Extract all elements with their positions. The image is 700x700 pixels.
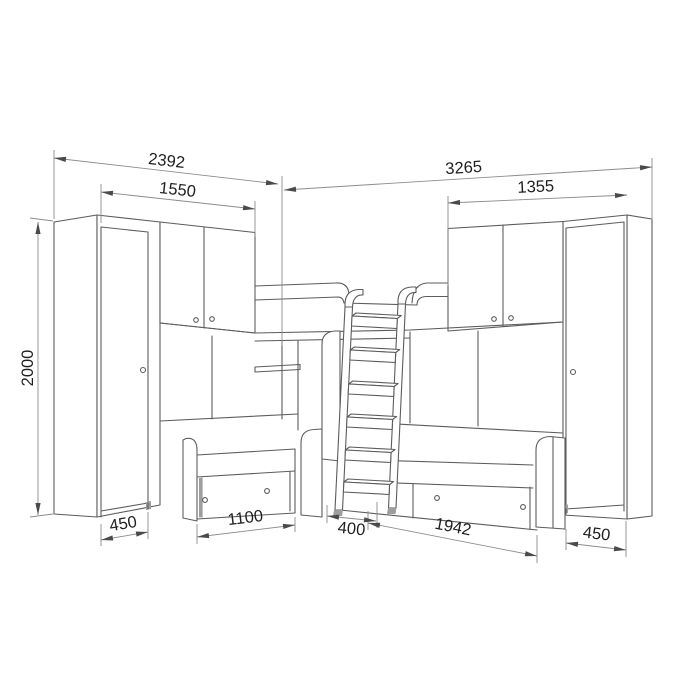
left-wardrobe-front xyxy=(97,215,160,517)
right-bed-drawer-knob-right xyxy=(521,505,526,510)
ladder xyxy=(333,287,416,516)
dimension-label-left-wardrobe-depth: 450 xyxy=(108,513,138,535)
furniture-drawing-canvas: 2392326515501355200045011004001942450 xyxy=(0,0,700,700)
left-bed-headboard xyxy=(183,438,197,521)
left-wardrobe xyxy=(54,215,160,517)
ladder-right-rail xyxy=(389,304,406,508)
right-bed-headboard xyxy=(322,331,340,461)
dimension-label-right-cabinet-width: 1355 xyxy=(517,177,554,197)
ladder-step-front xyxy=(347,417,393,430)
right-upper-cabinet-front xyxy=(448,222,563,332)
ladder-left-hook xyxy=(345,290,363,308)
ladder-step-front xyxy=(345,450,391,463)
dimension-label-left-bed-drawer-width: 1100 xyxy=(227,507,264,529)
ladder-step-front xyxy=(352,316,398,329)
left-bed-drawer-edge xyxy=(199,478,203,518)
right-bed-drawer-knob-left xyxy=(435,496,440,501)
ladder-right-foot xyxy=(387,508,397,514)
left-cupboard-bottom xyxy=(160,414,298,421)
left-bed-drawer-knob-right xyxy=(265,489,270,494)
right-wardrobe-side-panel xyxy=(627,215,652,519)
left-upper-cabinet-front xyxy=(160,222,255,333)
right-upper-cabinet xyxy=(448,222,563,332)
dimension-label-right-bed-drawer-width: 1942 xyxy=(433,515,472,540)
ladder-step-front xyxy=(350,350,396,363)
dimension-label-left-cabinet-width: 1550 xyxy=(158,179,196,201)
right-bed-footboard xyxy=(536,437,565,530)
right-wardrobe xyxy=(563,215,652,519)
right-wardrobe-front xyxy=(563,215,627,519)
left-bed-mattress-edge xyxy=(197,449,295,455)
dimension-label-right-wardrobe-depth: 450 xyxy=(582,523,611,544)
dimension-label-ladder-width: 400 xyxy=(337,519,366,540)
left-bed-drawer-knob-left xyxy=(203,498,208,503)
furniture-technical-drawing: 2392326515501355200045011004001942450 xyxy=(0,0,700,700)
ladder-step-front xyxy=(343,482,389,495)
dimension-label-overall-height: 2000 xyxy=(19,350,37,387)
left-bed-drawer-top xyxy=(197,471,295,477)
corner-shelf xyxy=(255,365,300,373)
left-wardrobe-side-panel xyxy=(54,215,97,517)
bunk-rail-left xyxy=(255,283,349,304)
left-bed-footboard xyxy=(301,429,322,517)
dimension-label-right-unit-width: 3265 xyxy=(445,158,483,178)
left-upper-cabinet xyxy=(160,222,255,333)
dimension-label-left-unit-width: 2392 xyxy=(147,150,186,172)
ladder-step-front xyxy=(348,384,394,397)
bunk-rail-right xyxy=(412,283,448,303)
